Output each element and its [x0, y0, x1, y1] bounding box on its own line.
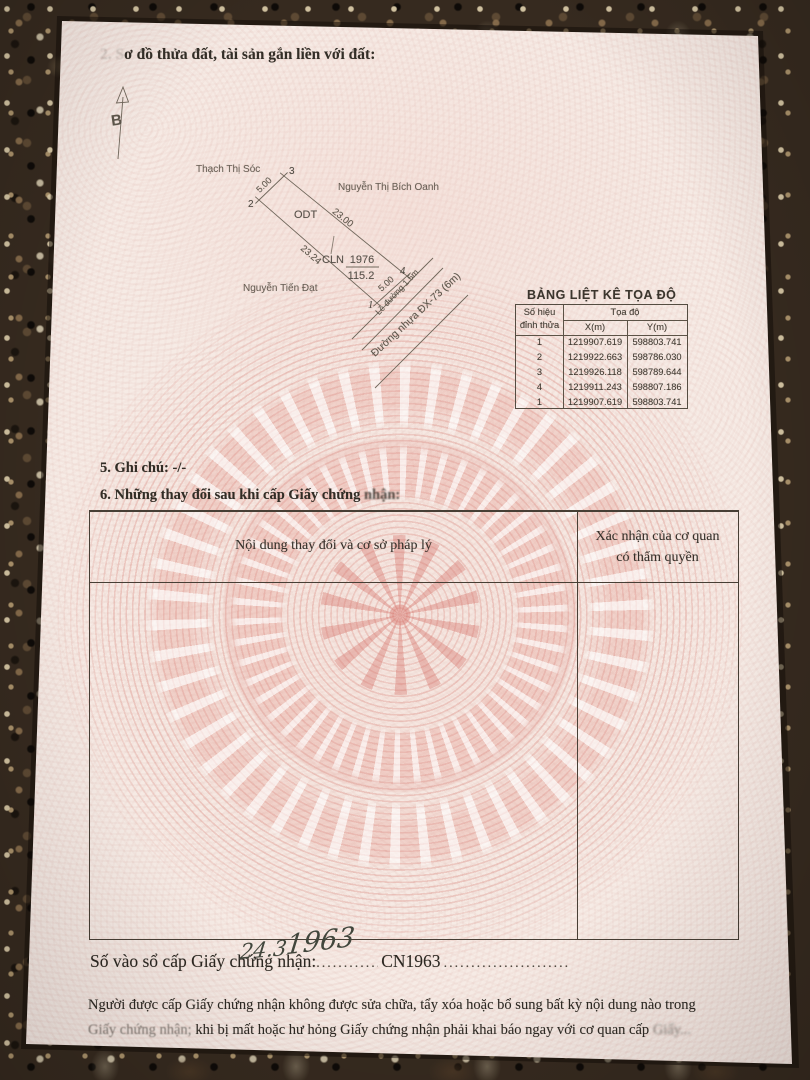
coord-row-2-x: 1219922.663: [563, 352, 627, 362]
coord-row-2-y: 598786.030: [627, 352, 687, 362]
coord-col-vertex-header: Số hiệu: [516, 307, 563, 317]
changes-right-header-line1: Xác nhận của cơ quan: [577, 526, 738, 547]
footer-line-1: Người được cấp Giấy chứng nhận không đượ…: [88, 997, 696, 1014]
coord-row-2-id: 2: [516, 352, 563, 362]
section-title: 2. Sơ đồ thửa đất, tài sản gắn liền với …: [100, 46, 375, 64]
changes-table-left-header: Nội dung thay đổi và cơ sở pháp lý: [90, 538, 577, 554]
coord-table: Số hiệu đỉnh thửa Tọa độ X(m) Y(m) 1 121…: [515, 304, 688, 409]
changes-table: Nội dung thay đổi và cơ sở pháp lý Xác n…: [89, 510, 739, 940]
parcel-number: 1976: [350, 254, 374, 266]
dimension-left: 23.24: [298, 243, 323, 267]
vertex-2-label: 2: [248, 199, 254, 210]
coord-row-3: 3 1219926.118 598789.644: [516, 365, 687, 380]
coord-row-3-id: 3: [516, 367, 563, 377]
coord-row-4-y: 598807.186: [627, 382, 687, 392]
neighbor-right-label: Nguyễn Thị Bích Oanh: [338, 180, 439, 193]
land-use-odt-label: ODT: [294, 209, 318, 221]
coord-row-4-x: 1219911.243: [563, 382, 627, 392]
dimension-top: 5.00: [254, 175, 274, 194]
vertex-3-label: 3: [289, 166, 295, 177]
coord-row-2: 2 1219922.663 598786.030: [516, 350, 687, 365]
north-arrow-shaft: [118, 97, 123, 159]
dimension-right: 23.00: [330, 206, 355, 230]
coord-row-5-y: 598803.741: [627, 397, 687, 407]
changes-right-header-line2: có thẩm quyền: [577, 547, 738, 568]
changes-table-divider: [577, 512, 578, 939]
registry-leader-dots-left: ................................: [316, 956, 378, 972]
handwritten-number: 24.3: [239, 936, 289, 964]
coord-row-5-x: 1219907.619: [563, 397, 627, 407]
coord-row-1: 1 1219907.619 598803.741: [516, 335, 687, 350]
note-6-smudged-text: nhận:: [360, 487, 400, 503]
coord-row-1-y: 598803.741: [627, 337, 687, 347]
coord-row-3-y: 598789.644: [627, 367, 687, 377]
coord-col-vertex-header-2: đỉnh thửa: [516, 320, 563, 330]
note-6: 6. Những thay đổi sau khi cấp Giấy chứng…: [100, 487, 400, 504]
north-arrow-head-icon: [117, 87, 129, 103]
coord-row-3-x: 1219926.118: [563, 367, 627, 377]
footer-line2-faded-start: Giấy chứng nhận;: [88, 1022, 192, 1038]
coord-row-4-id: 4: [516, 382, 563, 392]
coord-table-title: BẢNG LIỆT KÊ TỌA ĐỘ: [527, 288, 676, 302]
footer-line2-smudge: Giấy...: [653, 1022, 691, 1038]
footer-line2-text: khi bị mất hoặc hư hỏng Giấy chứng nhận …: [192, 1022, 653, 1038]
land-use-cln-label: CLN: [322, 254, 344, 266]
coord-row-1-x: 1219907.619: [563, 337, 627, 347]
neighbor-top-label: Thạch Thị Sóc: [196, 164, 260, 175]
coord-table-hline-1: [563, 320, 687, 321]
section-title-text: ơ đồ thửa đất, tài sản gắn liền với đất:: [124, 46, 375, 63]
coord-col-coords-header: Tọa độ: [563, 307, 687, 317]
changes-table-header-line: [90, 582, 738, 583]
changes-table-right-header: Xác nhận của cơ quan có thẩm quyền: [577, 526, 738, 568]
coord-col-x-header: X(m): [563, 322, 627, 332]
parcel-edge-2-3: [255, 173, 287, 204]
footer-line-2: Giấy chứng nhận; khi bị mất hoặc hư hỏng…: [88, 1022, 691, 1039]
note-6-text: 6. Những thay đổi sau khi cấp Giấy chứng: [100, 487, 360, 503]
coord-col-y-header: Y(m): [627, 322, 687, 332]
coord-row-1-id: 1: [516, 337, 563, 347]
certificate-page: 2. Sơ đồ thửa đất, tài sản gắn liền với …: [0, 0, 810, 1080]
coord-row-4: 4 1219911.243 598807.186: [516, 379, 687, 394]
land-use-division-line: [331, 236, 334, 254]
registry-number: CN1963: [381, 951, 440, 972]
section-title-faded-prefix: 2. S: [100, 46, 124, 63]
registry-leader-dots-right: ........................................…: [444, 956, 568, 972]
note-5: 5. Ghi chú: -/-: [100, 460, 186, 477]
parcel-edge-3-4: [280, 173, 411, 279]
coord-row-5-id: 1: [516, 397, 563, 407]
north-label: B: [110, 111, 123, 129]
coord-row-5: 1 1219907.619 598803.741: [516, 394, 687, 409]
